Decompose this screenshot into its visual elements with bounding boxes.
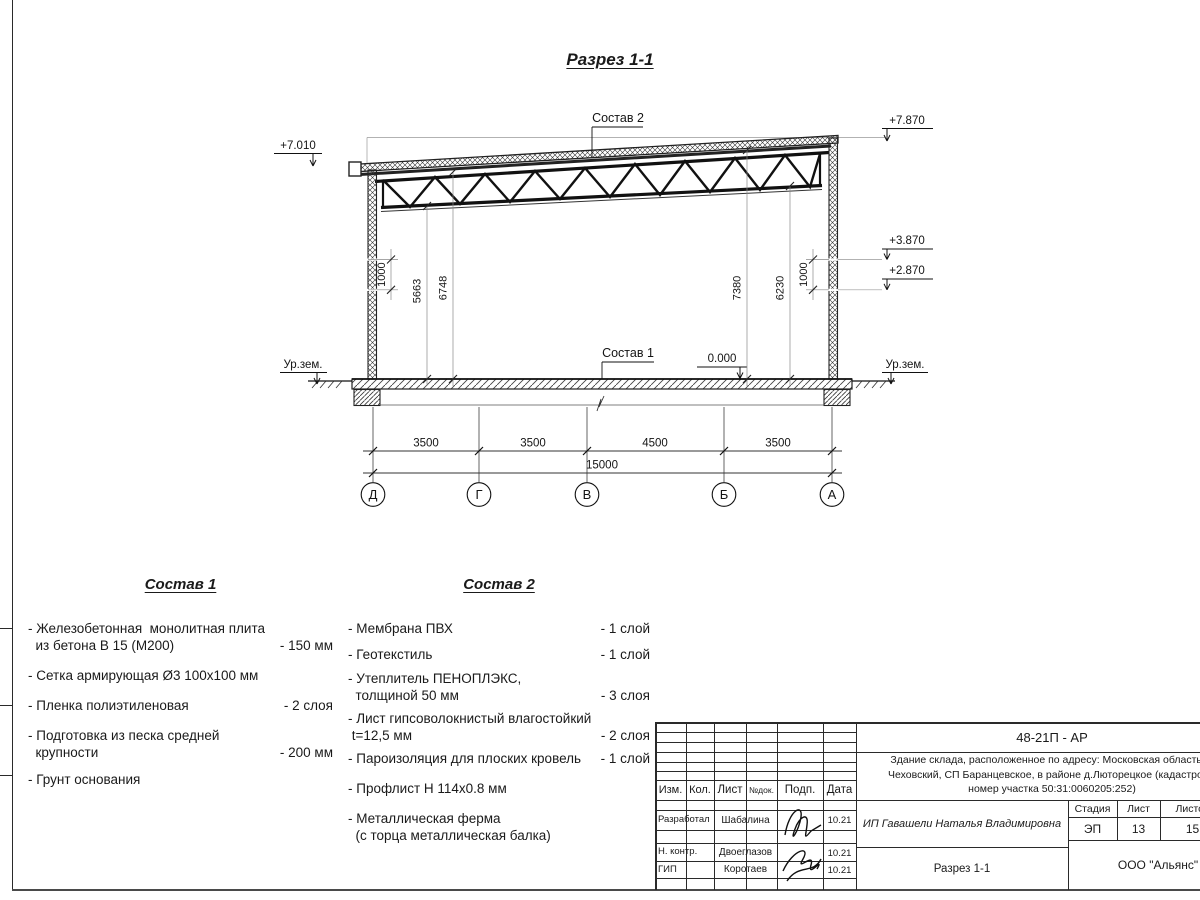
list-item: - Грунт основания bbox=[28, 771, 333, 788]
roof-end-cap bbox=[349, 162, 361, 176]
svg-text:+7.010: +7.010 bbox=[280, 140, 316, 152]
list-item: - Железобетонная монолитная плита из бет… bbox=[28, 620, 333, 654]
stamp-sheets-label: Листов bbox=[1160, 800, 1200, 817]
axis-label-a: А bbox=[828, 487, 837, 502]
description-line: номер участка 50:31:0060205:252) bbox=[856, 782, 1200, 797]
sostav1-list: Состав 1 - Железобетонная монолитная пли… bbox=[28, 575, 333, 801]
stamp-client: ИП Гавашели Наталья Владимировна bbox=[856, 800, 1068, 847]
stamp-date-developer: 10.21 bbox=[823, 812, 856, 828]
list-item: - Пароизоляция для плоских кровель- 1 сл… bbox=[348, 750, 650, 767]
frame-tick bbox=[0, 628, 13, 629]
section-drawing: Состав 2 Состав 1 +7.010 +7.870 +3.870 bbox=[0, 0, 1200, 560]
sostav2-leader-label: Состав 2 bbox=[592, 111, 644, 125]
ground-level-left: Ур.зем. bbox=[280, 359, 327, 384]
stamp-col-kol: Кол. bbox=[686, 780, 714, 800]
list-item: - Металлическая ферма (с торца металличе… bbox=[348, 810, 650, 844]
stamp-col-ndok: №док. bbox=[746, 780, 777, 800]
stamp-company: ООО "Альянс" bbox=[1068, 840, 1200, 890]
stamp-stage-label: Стадия bbox=[1068, 800, 1117, 817]
svg-text:1000: 1000 bbox=[376, 262, 388, 286]
dim-6748: 6748 bbox=[438, 276, 450, 300]
axis-label-b: Б bbox=[720, 487, 729, 502]
dim-3500-3: 3500 bbox=[765, 438, 791, 450]
description-line: Здание склада, расположенное по адресу: … bbox=[856, 753, 1200, 768]
axis-circles: Д Г В Б А bbox=[361, 483, 844, 507]
signature-icon bbox=[785, 810, 821, 836]
stamp-col-izm: Изм. bbox=[655, 780, 686, 800]
dim-3500-2: 3500 bbox=[520, 438, 546, 450]
stamp-name-developer: Шабалина bbox=[714, 810, 777, 830]
stamp-description: Здание склада, расположенное по адресу: … bbox=[856, 753, 1200, 799]
elevation-7010: +7.010 bbox=[274, 140, 322, 166]
dim-15000: 15000 bbox=[586, 460, 618, 472]
list-item: - Профлист Н 114х0.8 мм bbox=[348, 780, 650, 797]
axis-label-g: Г bbox=[475, 487, 482, 502]
frame-tick bbox=[0, 705, 13, 706]
elevation-zero: 0.000 bbox=[697, 353, 747, 379]
svg-text:Ур.зем.: Ур.зем. bbox=[283, 359, 322, 371]
stamp-date-ncontr: 10.21 bbox=[823, 845, 856, 861]
elevation-2870: +2.870 bbox=[838, 265, 934, 290]
stamp-col-list: Лист bbox=[714, 780, 746, 800]
left-footing bbox=[354, 390, 380, 406]
stamp-doc-code: 48-21П - АР bbox=[856, 722, 1200, 752]
sostav2-heading: Состав 2 bbox=[348, 575, 650, 595]
svg-text:+3.870: +3.870 bbox=[889, 235, 925, 247]
stamp-role-ncontr: Н. контр. bbox=[658, 843, 714, 861]
sostav1-heading: Состав 1 bbox=[28, 575, 333, 595]
ground-level-right: Ур.зем. bbox=[882, 359, 928, 384]
description-line: Чеховский, СП Баранцевское, в районе д.Л… bbox=[856, 768, 1200, 783]
signature-icon bbox=[783, 851, 821, 881]
stamp-sheets-value: 15 bbox=[1160, 817, 1200, 840]
stamp-name-ncontr: Двоеглазов bbox=[714, 843, 777, 861]
stamp-sheet-value: 13 bbox=[1117, 817, 1160, 840]
dim-5663: 5663 bbox=[412, 279, 424, 303]
stamp-sheet-label: Лист bbox=[1117, 800, 1160, 817]
elevation-7870: +7.870 bbox=[882, 115, 933, 141]
signature-marks bbox=[777, 795, 823, 888]
list-item: - Сетка армирующая Ø3 100х100 мм bbox=[28, 667, 333, 684]
stamp-role-developer: Разработал bbox=[658, 810, 714, 830]
frame-tick bbox=[0, 775, 13, 776]
axis-label-d: Д bbox=[369, 487, 378, 502]
svg-text:+7.870: +7.870 bbox=[889, 115, 925, 127]
right-footing bbox=[824, 390, 850, 406]
svg-text:+2.870: +2.870 bbox=[889, 265, 925, 277]
sostav2-list: Состав 2 - Мембрана ПВХ- 1 слой - Геотек… bbox=[348, 575, 650, 844]
svg-text:0.000: 0.000 bbox=[708, 353, 737, 365]
dim-6230: 6230 bbox=[775, 276, 787, 300]
svg-text:Ур.зем.: Ур.зем. bbox=[885, 359, 924, 371]
list-item: - Пленка полиэтиленовая- 2 слоя bbox=[28, 697, 333, 714]
drawing-sheet: { "title": "Разрез 1-1", "section": { "s… bbox=[0, 0, 1200, 900]
list-item: - Мембрана ПВХ- 1 слой bbox=[348, 620, 650, 637]
stamp-col-data: Дата bbox=[823, 780, 856, 800]
dim-3500-1: 3500 bbox=[413, 438, 439, 450]
stamp-drawing-title: Разрез 1-1 bbox=[856, 847, 1068, 890]
break-mark bbox=[597, 396, 604, 411]
list-item: - Лист гипсоволокнистый влагостойкий t=1… bbox=[348, 710, 650, 744]
axis-label-v: В bbox=[583, 487, 592, 502]
stamp-name-gip: Коротаев bbox=[714, 861, 777, 878]
stamp-stage-value: ЭП bbox=[1068, 817, 1117, 840]
elevation-3870: +3.870 bbox=[838, 235, 934, 260]
stamp-role-gip: ГИП bbox=[658, 861, 714, 878]
stamp-date-gip: 10.21 bbox=[823, 862, 856, 878]
dim-4500: 4500 bbox=[642, 438, 668, 450]
list-item: - Подготовка из песка средней крупности-… bbox=[28, 727, 333, 761]
svg-text:1000: 1000 bbox=[798, 262, 810, 286]
dim-1000-right: 1000 bbox=[798, 249, 829, 300]
sostav1-leader-label: Состав 1 bbox=[602, 346, 654, 360]
walls bbox=[367, 138, 839, 379]
dim-7380: 7380 bbox=[732, 276, 744, 300]
list-item: - Утеплитель ПЕНОПЛЭКС, толщиной 50 мм- … bbox=[348, 670, 650, 704]
axis-dimensions: 3500 3500 4500 3500 15000 bbox=[363, 407, 842, 482]
list-item: - Геотекстиль- 1 слой bbox=[348, 646, 650, 663]
